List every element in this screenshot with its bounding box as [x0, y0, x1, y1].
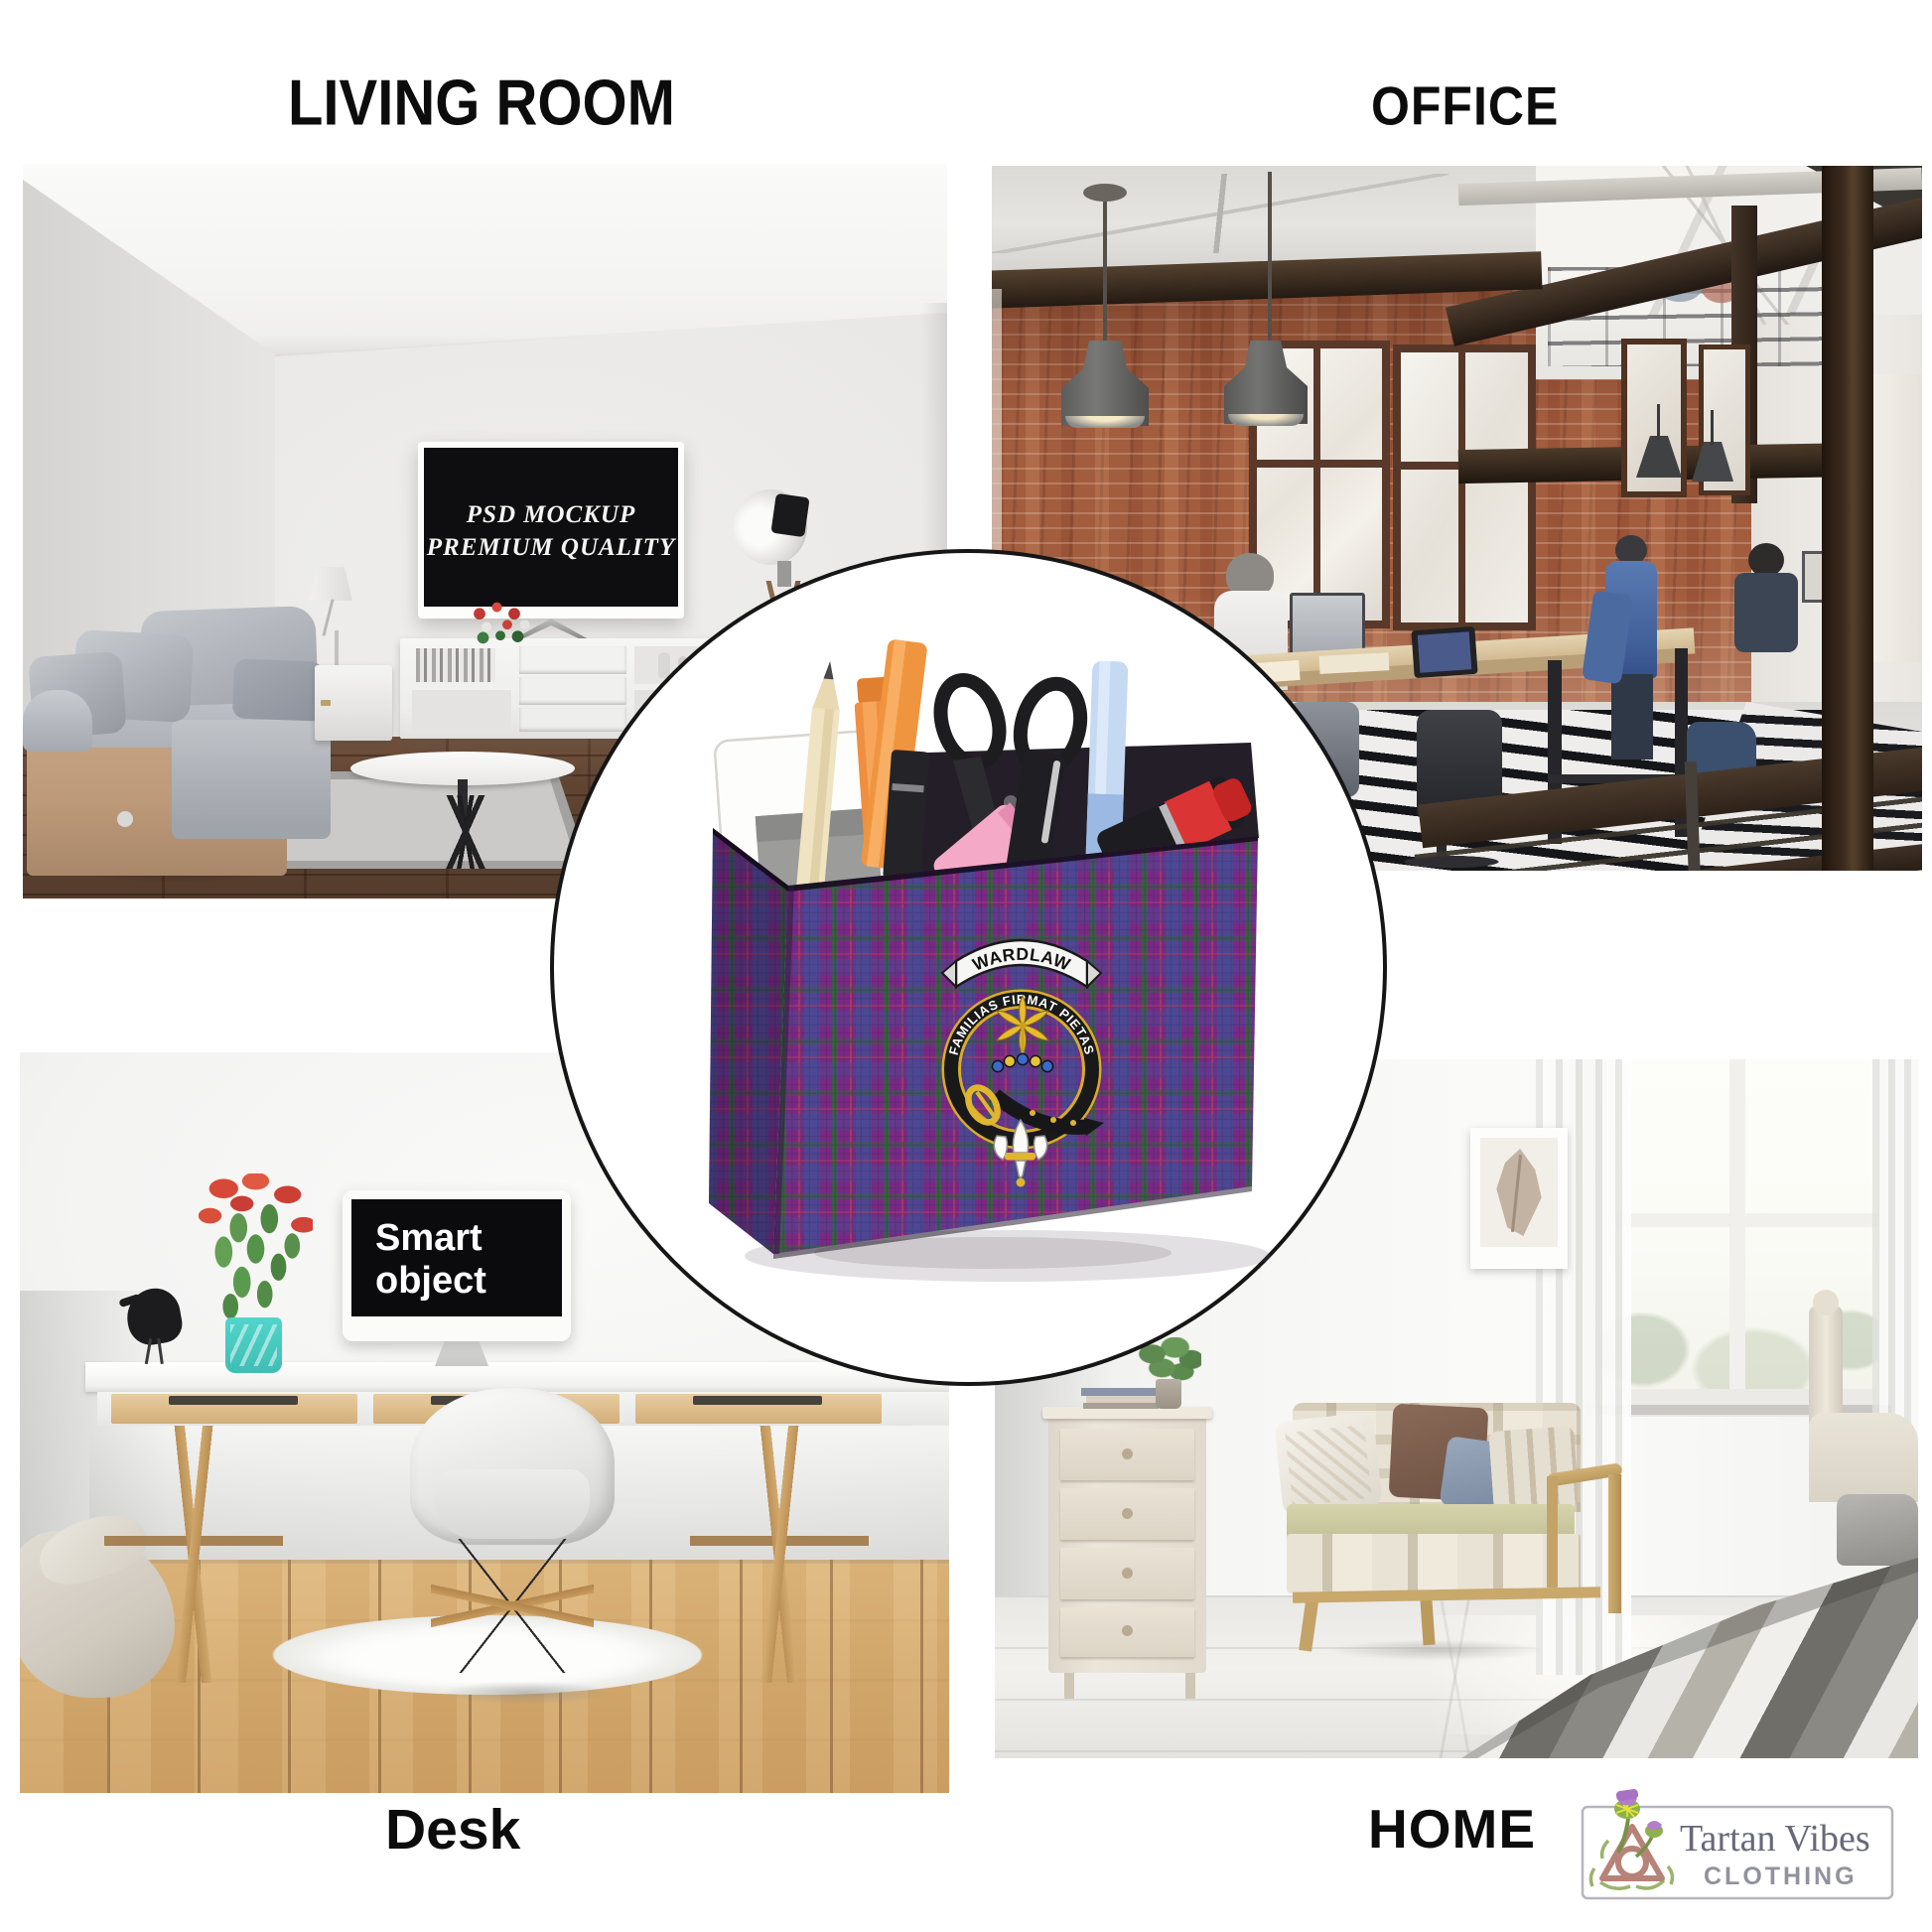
svg-text:CLOTHING: CLOTHING: [1704, 1863, 1858, 1890]
svg-text:Tartan Vibes: Tartan Vibes: [1680, 1818, 1870, 1860]
